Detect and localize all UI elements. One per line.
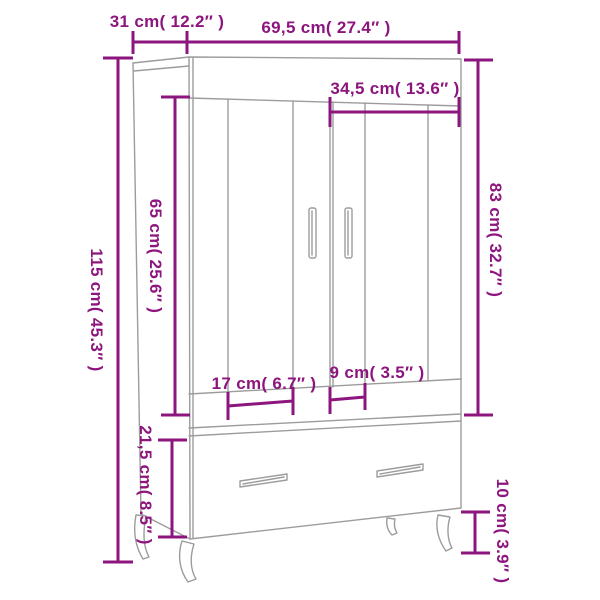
wardrobe-drawing	[133, 57, 461, 582]
dim-left-compartment-label: 17 cm( 6.7″ )	[212, 374, 317, 393]
leg-rear-right	[387, 518, 397, 535]
dimension-diagram: 31 cm( 12.2″ ) 69,5 cm( 27.4″ ) 34,5 cm(…	[0, 0, 600, 600]
dim-drawer-height-line	[158, 440, 187, 537]
dim-total-height-line	[103, 58, 133, 562]
leg-front-right	[437, 515, 452, 551]
dim-drawer-height-label: 21,5 cm( 8.5″ )	[136, 425, 155, 544]
door-handle-right	[345, 208, 352, 258]
dim-door-width-label: 34,5 cm( 13.6″ )	[330, 79, 459, 98]
dim-leg-height-line	[461, 512, 490, 553]
dim-width-label: 69,5 cm( 27.4″ )	[261, 18, 390, 37]
leg-front-left	[180, 541, 196, 582]
diagram-canvas: 31 cm( 12.2″ ) 69,5 cm( 27.4″ ) 34,5 cm(…	[0, 0, 600, 600]
door-handle-left	[309, 208, 316, 258]
dim-right-compartment-label: 9 cm( 3.5″ )	[330, 363, 425, 382]
dim-upper-section-height-label: 83 cm( 32.7″ )	[486, 183, 505, 297]
dim-total-height-label: 115 cm( 45.3″ )	[87, 248, 106, 371]
dim-leg-height-label: 10 cm( 3.9″ )	[493, 479, 512, 584]
dim-door-height-label: 65 cm( 25.6″ )	[146, 199, 165, 313]
dim-depth-label: 31 cm( 12.2″ )	[110, 12, 224, 31]
